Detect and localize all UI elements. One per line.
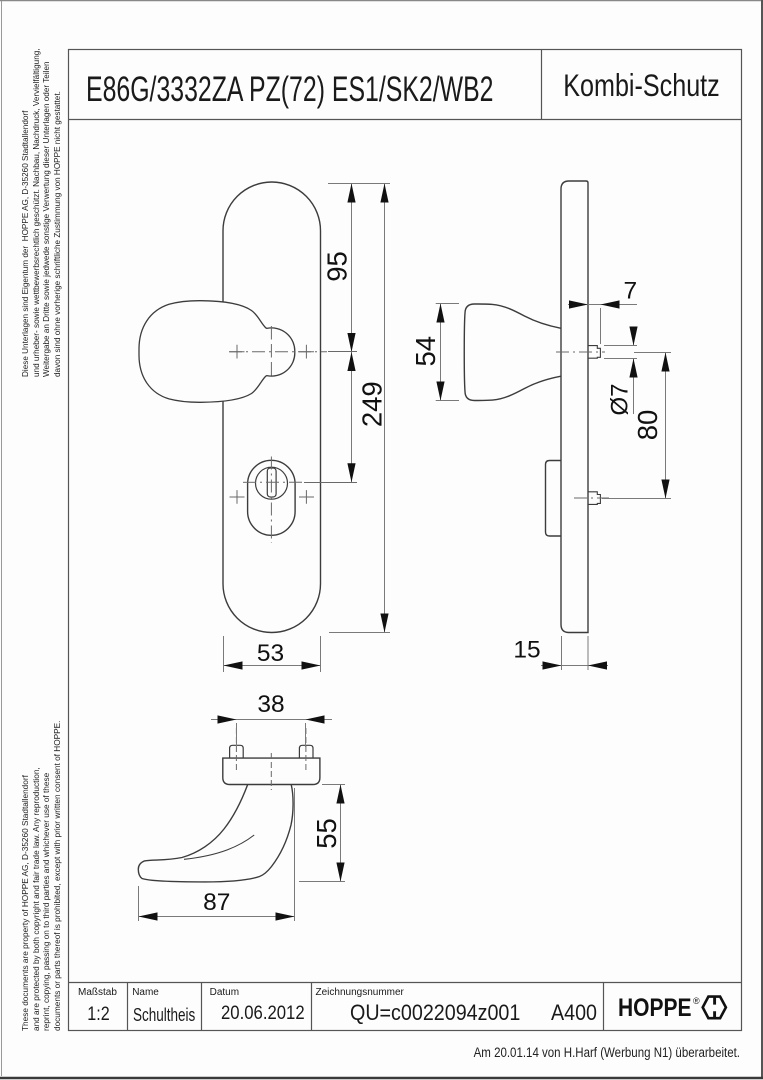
svg-text:54: 54	[410, 336, 441, 367]
svg-text:7: 7	[623, 278, 637, 305]
svg-text:15: 15	[513, 637, 540, 664]
svg-text:95: 95	[321, 251, 352, 282]
svg-text:80: 80	[632, 410, 663, 441]
svg-text:53: 53	[257, 640, 284, 667]
svg-text:Ø7: Ø7	[607, 383, 634, 415]
svg-text:55: 55	[311, 818, 342, 849]
svg-text:249: 249	[357, 381, 388, 427]
svg-text:38: 38	[257, 691, 284, 718]
svg-text:87: 87	[203, 889, 230, 916]
